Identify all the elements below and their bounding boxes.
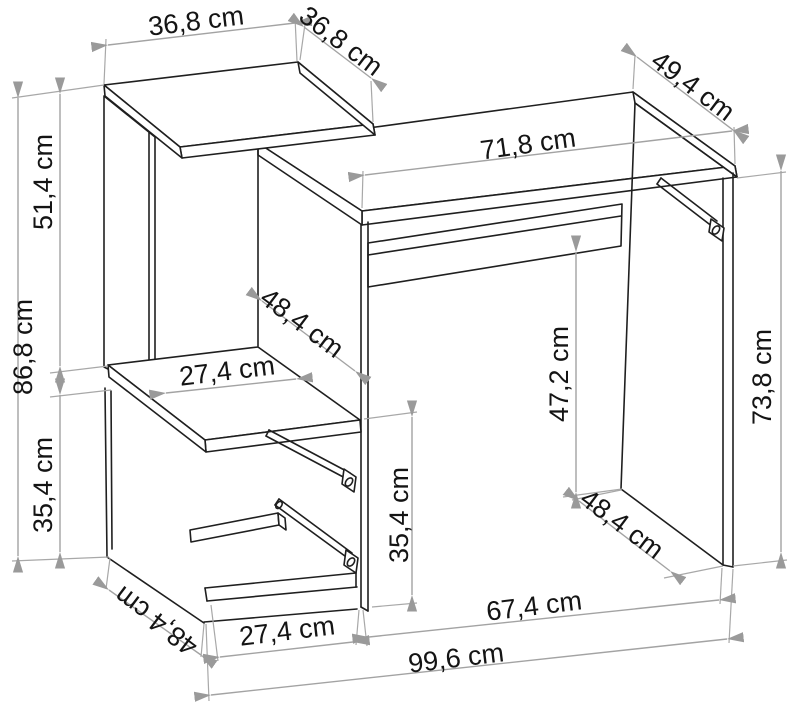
dim-upper-section-height-label: 51,4 cm (28, 134, 58, 230)
dim-right-side-height-label: 73,8 cm (747, 329, 777, 425)
dim-cabinet-side-depth-label: 48,4 cm (109, 580, 204, 662)
cabinet-inner-shelf (190, 513, 286, 542)
dim-right-side-depth-label: 48,4 cm (575, 483, 670, 565)
dim-under-desktop-height-label: 47,2 cm (544, 326, 574, 422)
desk-dimension-diagram: 36,8 cm 36,8 cm 49,4 cm 71,8 cm 51,4 cm … (0, 0, 800, 716)
dim-knee-space-width-label: 67,4 cm (485, 585, 584, 626)
drawer-rail-lower (274, 499, 358, 573)
dim-lower-left-section-height-label: 35,4 cm (28, 437, 58, 533)
dim-left-total-height-label: 86,8 cm (8, 299, 38, 395)
left-side-panel (104, 96, 155, 393)
dim-total-width-label: 99,6 cm (407, 637, 506, 678)
diagram-canvas: 36,8 cm 36,8 cm 49,4 cm 71,8 cm 51,4 cm … (0, 0, 800, 716)
dim-top-shelf-width-label: 36,8 cm (147, 0, 246, 41)
dim-cabinet-opening-height-label: 35,4 cm (384, 467, 414, 563)
drawer-rail-under-desk (657, 178, 724, 241)
